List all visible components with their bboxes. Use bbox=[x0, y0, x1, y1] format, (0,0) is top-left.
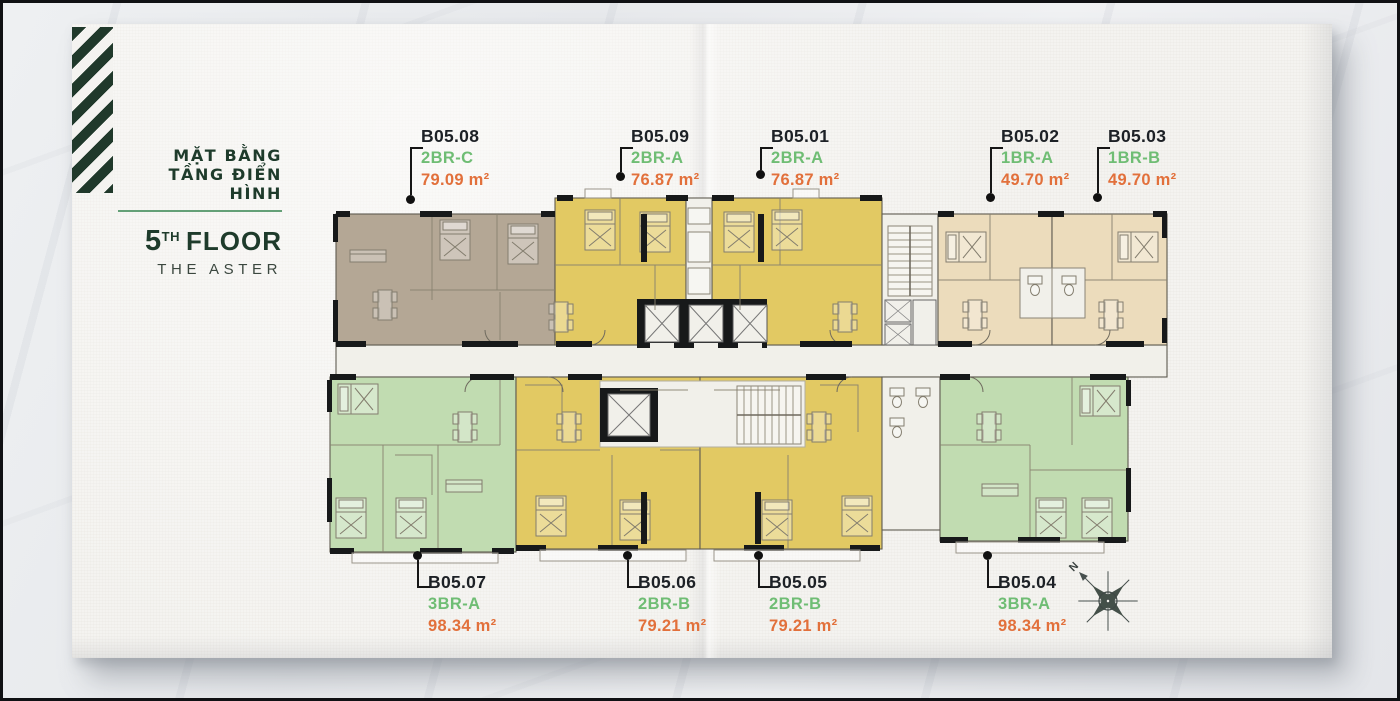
unit-area: 79.09 m² bbox=[421, 169, 489, 191]
unit-area: 79.21 m² bbox=[638, 615, 706, 637]
leader-line bbox=[417, 560, 430, 588]
unit-label-b05-09: B05.09 2BR-A 76.87 m² bbox=[618, 126, 699, 191]
page-title-line2: TẦNG ĐIỂN HÌNH bbox=[118, 165, 282, 203]
unit-labels: B05.08 2BR-C 79.09 m² B05.09 2BR-A 76.87… bbox=[0, 0, 1400, 701]
unit-area: 76.87 m² bbox=[771, 169, 839, 191]
leader-line bbox=[410, 147, 423, 195]
page-title-line1: MẶT BẰNG bbox=[118, 146, 282, 165]
unit-type: 3BR-A bbox=[998, 593, 1066, 615]
unit-id: B05.01 bbox=[771, 126, 839, 147]
leader-line bbox=[627, 560, 640, 588]
floor-ordinal: TH bbox=[162, 229, 180, 244]
unit-label-b05-08: B05.08 2BR-C 79.09 m² bbox=[408, 126, 489, 191]
unit-label-b05-07: B05.07 3BR-A 98.34 m² bbox=[415, 572, 496, 637]
unit-id: B05.08 bbox=[421, 126, 489, 147]
unit-id: B05.02 bbox=[1001, 126, 1069, 147]
unit-type: 2BR-C bbox=[421, 147, 489, 169]
unit-type: 2BR-B bbox=[638, 593, 706, 615]
unit-type: 1BR-A bbox=[1001, 147, 1069, 169]
unit-area: 49.70 m² bbox=[1001, 169, 1069, 191]
unit-area: 79.21 m² bbox=[769, 615, 837, 637]
unit-type: 3BR-A bbox=[428, 593, 496, 615]
floor-plan-page: MẶT BẰNG TẦNG ĐIỂN HÌNH 5THFLOOR THE AST… bbox=[0, 0, 1400, 701]
unit-id: B05.07 bbox=[428, 572, 496, 593]
diagonal-stripes-icon bbox=[72, 27, 113, 193]
unit-label-b05-04: B05.04 3BR-A 98.34 m² bbox=[985, 572, 1066, 637]
leader-line bbox=[758, 560, 771, 588]
unit-label-b05-01: B05.01 2BR-A 76.87 m² bbox=[758, 126, 839, 191]
floor-number: 5 bbox=[145, 225, 162, 257]
floor-word: FLOOR bbox=[186, 226, 282, 256]
unit-id: B05.04 bbox=[998, 572, 1066, 593]
leader-line bbox=[990, 147, 1003, 193]
unit-id: B05.03 bbox=[1108, 126, 1176, 147]
title-block: MẶT BẰNG TẦNG ĐIỂN HÌNH 5THFLOOR THE AST… bbox=[118, 146, 282, 278]
leader-line bbox=[1097, 147, 1110, 193]
unit-type: 2BR-A bbox=[771, 147, 839, 169]
unit-label-b05-02: B05.02 1BR-A 49.70 m² bbox=[988, 126, 1069, 191]
unit-area: 98.34 m² bbox=[998, 615, 1066, 637]
unit-label-b05-06: B05.06 2BR-B 79.21 m² bbox=[625, 572, 706, 637]
project-name: THE ASTER bbox=[118, 261, 282, 278]
leader-line bbox=[620, 147, 633, 172]
unit-area: 49.70 m² bbox=[1108, 169, 1176, 191]
unit-area: 98.34 m² bbox=[428, 615, 496, 637]
unit-type: 2BR-A bbox=[631, 147, 699, 169]
unit-id: B05.09 bbox=[631, 126, 699, 147]
unit-id: B05.06 bbox=[638, 572, 706, 593]
unit-type: 1BR-B bbox=[1108, 147, 1176, 169]
unit-label-b05-03: B05.03 1BR-B 49.70 m² bbox=[1095, 126, 1176, 191]
unit-id: B05.05 bbox=[769, 572, 837, 593]
unit-area: 76.87 m² bbox=[631, 169, 699, 191]
leader-line bbox=[760, 147, 773, 170]
title-underline bbox=[118, 210, 282, 212]
leader-line bbox=[987, 560, 1000, 588]
floor-title: 5THFLOOR bbox=[118, 225, 282, 258]
unit-type: 2BR-B bbox=[769, 593, 837, 615]
unit-label-b05-05: B05.05 2BR-B 79.21 m² bbox=[756, 572, 837, 637]
